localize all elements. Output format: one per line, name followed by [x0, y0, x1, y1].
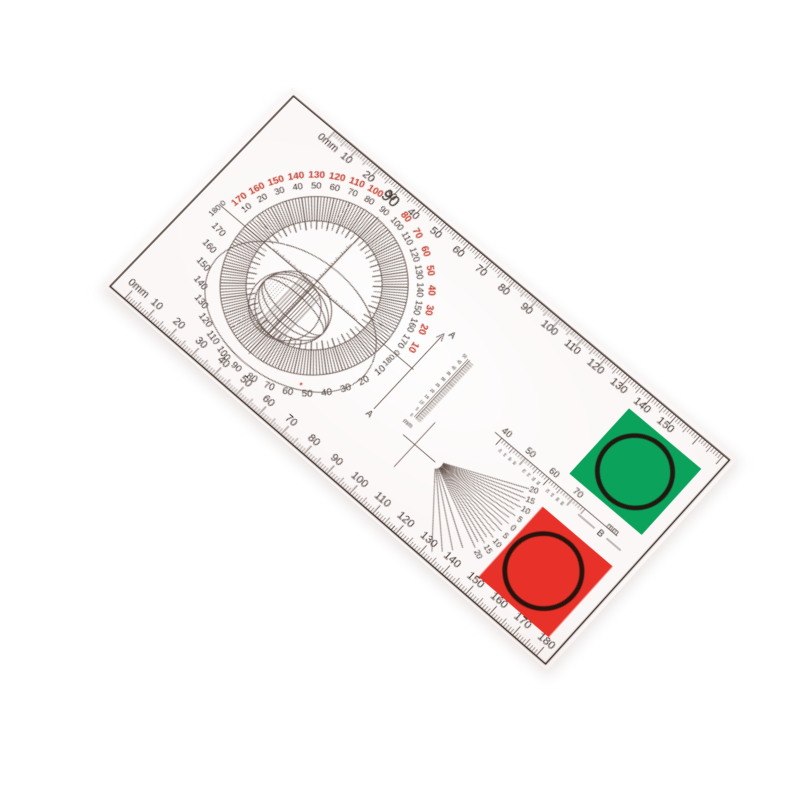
svg-text:50: 50	[301, 388, 312, 399]
svg-text:50: 50	[311, 180, 322, 190]
svg-text:40: 40	[292, 181, 304, 192]
svg-text:40: 40	[425, 285, 437, 296]
svg-text:140: 140	[415, 282, 426, 297]
svg-text:30: 30	[422, 304, 436, 317]
svg-text:50: 50	[424, 265, 437, 277]
svg-text:130: 130	[308, 170, 325, 181]
